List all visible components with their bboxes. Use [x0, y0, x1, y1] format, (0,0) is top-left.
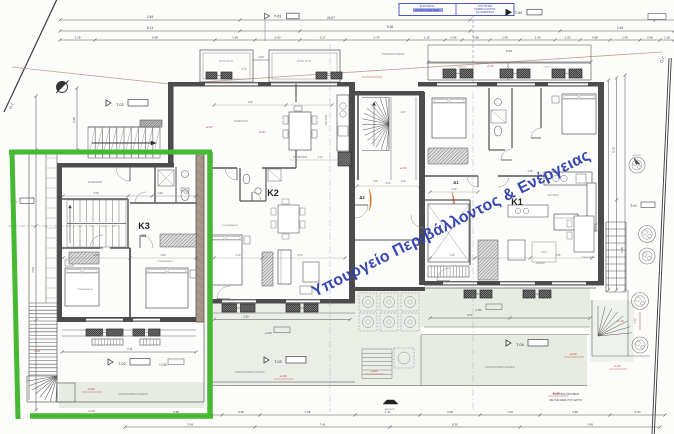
svg-text:2.45: 2.45 [147, 15, 154, 19]
svg-text:ΚΑΤΟΨΗ ΟΡΟΦΗΣ: ΚΑΤΟΨΗ ΟΡΟΦΗΣ [553, 392, 580, 396]
svg-text:ΣΑΛΟΝΙ: ΣΑΛΟΝΙ [536, 262, 545, 265]
svg-text:1.40: 1.40 [622, 35, 628, 39]
svg-text:0.60: 0.60 [275, 35, 281, 39]
svg-text:ΔΙΑΔΡΟΜΟΣ: ΔΙΑΔΡΟΜΟΣ [88, 181, 103, 184]
svg-text:1.05: 1.05 [34, 349, 40, 353]
svg-text:ΛΙΑΚΩΤΟ: ΛΙΑΚΩΤΟ [457, 66, 467, 69]
svg-text:3.17: 3.17 [320, 35, 326, 39]
svg-text:3.08: 3.08 [447, 410, 453, 414]
svg-text:Δ2: Δ2 [359, 195, 365, 200]
svg-text:T-04: T-04 [515, 11, 522, 15]
svg-text:ΑΡ. ΠΡΩΤ. 4521 12/09: ΑΡ. ΠΡΩΤ. 4521 12/09 [415, 9, 439, 12]
svg-text:0.70: 0.70 [242, 68, 247, 71]
svg-text:ΦΩΤΑΓΩΓΟΣ: ΦΩΤΑΓΩΓΟΣ [297, 60, 312, 63]
svg-text:+0.45: +0.45 [87, 409, 95, 413]
svg-text:K2: K2 [267, 188, 279, 198]
svg-text:ΔΙΑΜΟΡΦΩΜΕΝΟ ΕΔΑΦΟΣ: ΔΙΑΜΟΡΦΩΜΕΝΟ ΕΔΑΦΟΣ [485, 366, 515, 369]
svg-text:9.70: 9.70 [612, 147, 616, 153]
svg-text:1.10: 1.10 [373, 180, 378, 183]
svg-text:1.90: 1.90 [157, 191, 163, 195]
svg-text:1.90: 1.90 [450, 254, 455, 257]
svg-text:9.38: 9.38 [387, 25, 394, 29]
svg-text:T=0: T=0 [630, 204, 637, 208]
svg-text:+4.04: +4.04 [370, 369, 378, 373]
svg-text:3.34: 3.34 [187, 423, 193, 427]
svg-text:3.08: 3.08 [248, 101, 253, 104]
svg-text:+2.80: +2.80 [264, 331, 272, 335]
svg-text:6.98: 6.98 [152, 35, 158, 39]
svg-text:ΚΑΘΙΣΤΙΚΟ: ΚΑΘΙΣΤΙΚΟ [234, 119, 248, 123]
svg-text:+1.00: +1.00 [279, 374, 287, 378]
svg-text:6.11: 6.11 [127, 347, 133, 351]
svg-text:24.97: 24.97 [327, 16, 335, 20]
svg-text:2.10: 2.10 [236, 254, 241, 257]
svg-text:1.74: 1.74 [318, 156, 323, 159]
svg-text:1.70: 1.70 [633, 318, 637, 324]
svg-text:0.30: 0.30 [635, 410, 641, 414]
svg-text:7.28: 7.28 [305, 410, 311, 414]
svg-text:1.18: 1.18 [664, 35, 670, 39]
svg-text:+2.80: +2.80 [159, 363, 167, 367]
svg-text:4.35: 4.35 [556, 254, 561, 257]
svg-text:T-03: T-03 [274, 15, 281, 19]
svg-text:+1.00: +1.00 [569, 352, 577, 356]
svg-text:+2.97: +2.97 [205, 125, 213, 129]
svg-text:7.04: 7.04 [31, 267, 35, 273]
svg-text:0.90: 0.90 [238, 410, 244, 414]
svg-text:ΔΙΑΜΟΡΦΩΜΕΝΟ ΕΔΑΦΟΣ: ΔΙΑΜΟΡΦΩΜΕΝΟ ΕΔΑΦΟΣ [235, 371, 265, 374]
svg-text:1.18: 1.18 [75, 35, 81, 39]
svg-text:+0.90: +0.90 [87, 387, 95, 391]
svg-text:ΥΠΝΟΔΩΜΑΤΙΟ: ΥΠΝΟΔΩΜΑΤΙΟ [157, 260, 173, 263]
svg-text:3.08: 3.08 [93, 191, 99, 195]
svg-text:2.20: 2.20 [386, 182, 391, 185]
svg-text:-2.80: -2.80 [475, 308, 482, 312]
svg-text:1.02: 1.02 [565, 35, 571, 39]
svg-text:0.88: 0.88 [473, 35, 479, 39]
svg-text:2.10: 2.10 [452, 188, 457, 191]
svg-text:1.10: 1.10 [401, 180, 406, 183]
svg-text:ΚΟΥΖΙΝΑ: ΚΟΥΖΙΝΑ [548, 194, 559, 197]
svg-text:ΥΠΝΟΔΩΜΑΤΙΟ: ΥΠΝΟΔΩΜΑΤΙΟ [222, 224, 238, 227]
svg-text:ΤΡΑΠΕΖΑΡΙΑ: ΤΡΑΠΕΖΑΡΙΑ [293, 156, 308, 159]
svg-text:7.00: 7.00 [507, 410, 513, 414]
svg-text:3.92: 3.92 [243, 315, 249, 319]
svg-text:0.96: 0.96 [451, 35, 457, 39]
svg-text:1.40: 1.40 [535, 35, 541, 39]
svg-text:4.69: 4.69 [572, 410, 578, 414]
svg-text:ΜΕ ΤΗΝ ΘΕΣΗ ΤΟΥ ΕΡΓΟΥ: ΜΕ ΤΗΝ ΘΕΣΗ ΤΟΥ ΕΡΓΟΥ [550, 398, 583, 402]
svg-text:1.40: 1.40 [385, 410, 391, 414]
svg-text:1.17: 1.17 [400, 110, 406, 114]
svg-text:ΔΙΑΜΟΡΦΩΜΕΝΟ ΕΔΑΦΟΣ: ΔΙΑΜΟΡΦΩΜΕΝΟ ΕΔΑΦΟΣ [118, 393, 148, 396]
svg-text:9.25: 9.25 [506, 49, 512, 53]
svg-text:K3: K3 [138, 221, 150, 231]
svg-text:0.96: 0.96 [647, 35, 653, 39]
svg-text:1.95: 1.95 [72, 117, 76, 123]
svg-text:4.36: 4.36 [527, 169, 533, 173]
svg-text:+1.35: +1.35 [613, 364, 621, 368]
svg-text:5.71: 5.71 [467, 313, 473, 317]
svg-text:2.86: 2.86 [161, 254, 166, 257]
svg-text:+2.97: +2.97 [258, 130, 266, 134]
svg-text:7.41: 7.41 [320, 423, 326, 427]
svg-text:ΦΩΤΑΓΩΓΟΣ: ΦΩΤΑΓΩΓΟΣ [219, 60, 234, 63]
svg-text:ΥΠΝΟΔΩΜΑΤΙΟ: ΥΠΝΟΔΩΜΑΤΙΟ [77, 288, 93, 291]
svg-text:T-04: T-04 [516, 343, 524, 347]
svg-text:6.14: 6.14 [147, 26, 154, 30]
svg-text:+6.10: +6.10 [487, 64, 494, 68]
svg-text:1.18: 1.18 [424, 35, 430, 39]
svg-text:T-03: T-03 [274, 360, 282, 364]
svg-text:1.40: 1.40 [502, 35, 508, 39]
svg-text:ΕΓΚΡΙΝΕΤΑΙ: ΕΓΚΡΙΝΕΤΑΙ [420, 4, 435, 8]
svg-text:1.10: 1.10 [183, 191, 189, 195]
svg-text:T-02: T-02 [116, 103, 124, 107]
svg-text:ΧΑΛΙ: ΧΑΛΙ [541, 251, 547, 254]
svg-text:2.45: 2.45 [617, 26, 624, 30]
svg-text:+2.30: +2.30 [400, 166, 407, 170]
svg-text:8.30: 8.30 [452, 423, 458, 427]
svg-text:1.90: 1.90 [232, 35, 238, 39]
svg-text:0.79: 0.79 [374, 35, 380, 39]
svg-text:0.88: 0.88 [592, 35, 598, 39]
svg-text:ΑΝΟΔΟΣ: ΑΝΟΔΟΣ [633, 154, 642, 157]
svg-text:ΚΟΥΖΙΝΑ: ΚΟΥΖΙΝΑ [325, 114, 328, 125]
svg-text:ΚΑΙ ΕΝΕΡΓΕΙΑΣ: ΚΑΙ ΕΝΕΡΓΕΙΑΣ [476, 11, 495, 14]
svg-text:ΥΠΑΙΘΡΙΟΣ ΧΩΡΟΣ: ΥΠΑΙΘΡΙΟΣ ΧΩΡΟΣ [381, 53, 404, 56]
svg-text:2.45: 2.45 [587, 423, 593, 427]
svg-text:3.70: 3.70 [298, 254, 303, 257]
svg-text:2.80: 2.80 [94, 254, 99, 257]
svg-text:2.00: 2.00 [258, 55, 264, 59]
svg-text:Δ1: Δ1 [453, 180, 459, 185]
svg-text:ΛΙΑΚΩΤΟ: ΛΙΑΚΩΤΟ [543, 66, 553, 69]
svg-text:T-02: T-02 [118, 362, 126, 366]
svg-text:ΛΙΑΚΩΤΑ ΚΗΠΟΣ: ΛΙΑΚΩΤΑ ΚΗΠΟΣ [362, 75, 383, 79]
svg-text:+1.10: +1.10 [616, 319, 624, 323]
